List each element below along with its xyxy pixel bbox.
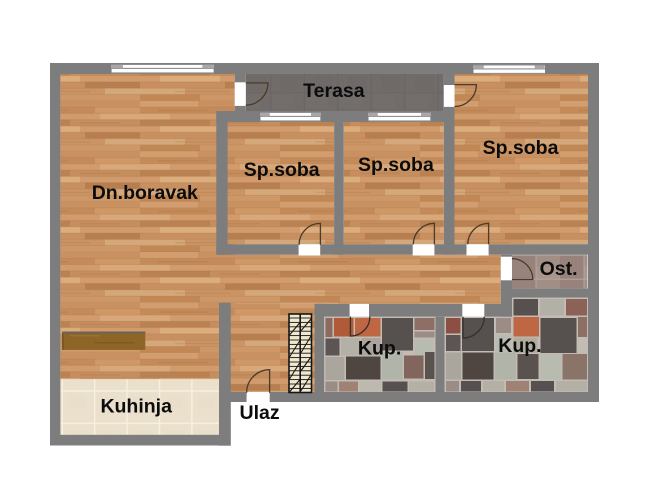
svg-text:Ulaz: Ulaz xyxy=(240,402,280,424)
svg-text:Kuhinja: Kuhinja xyxy=(100,396,172,418)
svg-text:Sp.soba: Sp.soba xyxy=(358,154,434,176)
svg-text:Kup.: Kup. xyxy=(358,338,401,360)
svg-text:Dn.boravak: Dn.boravak xyxy=(92,182,198,204)
svg-text:Ost.: Ost. xyxy=(540,258,578,280)
svg-text:Sp.soba: Sp.soba xyxy=(483,137,559,159)
svg-text:Terasa: Terasa xyxy=(303,80,365,102)
svg-text:Sp.soba: Sp.soba xyxy=(244,159,320,181)
svg-text:Kup.: Kup. xyxy=(498,335,541,357)
